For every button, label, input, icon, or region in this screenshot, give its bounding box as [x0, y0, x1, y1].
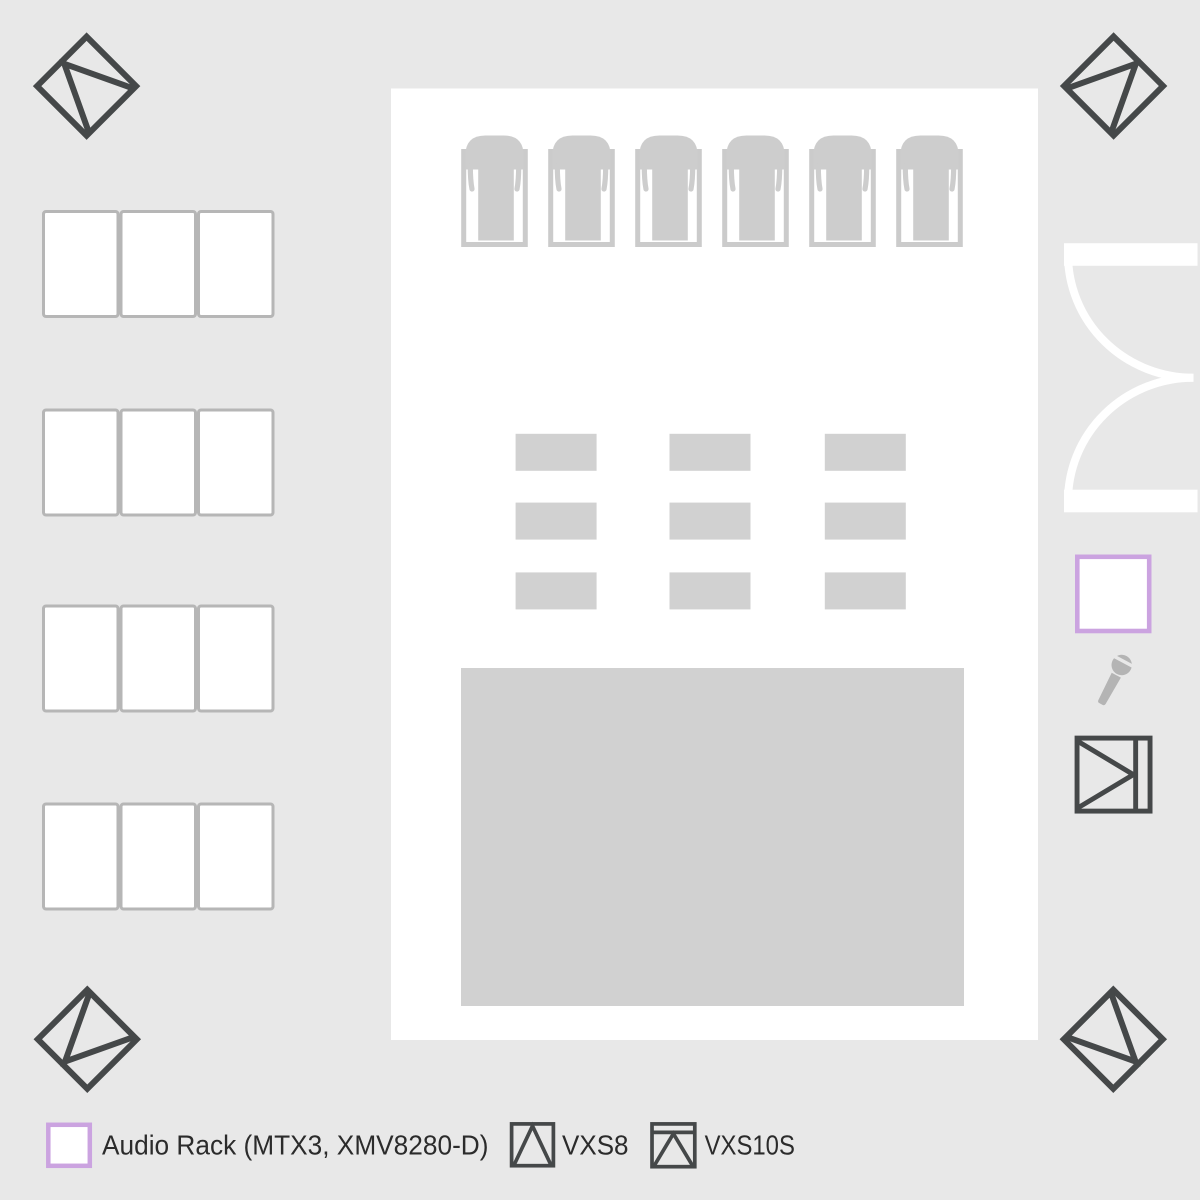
svg-text:Audio Rack (MTX3, XMV8280-D): Audio Rack (MTX3, XMV8280-D)	[102, 1130, 489, 1161]
svg-text:VXS8: VXS8	[562, 1130, 629, 1161]
svg-text:VXS10S: VXS10S	[705, 1130, 795, 1161]
